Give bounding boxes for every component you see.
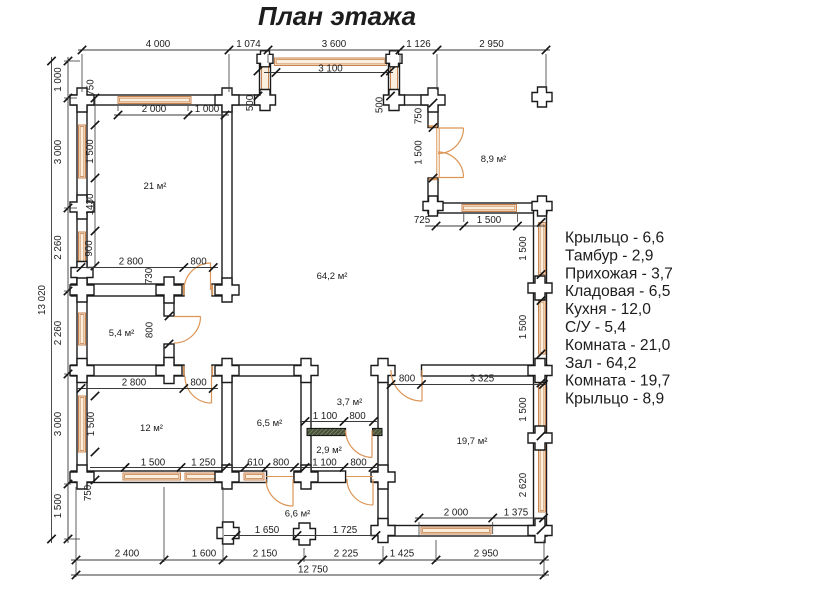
svg-text:800: 800: [350, 458, 367, 469]
svg-text:2 260: 2 260: [53, 320, 64, 345]
svg-text:500: 500: [375, 96, 386, 113]
svg-text:64,2 м²: 64,2 м²: [317, 271, 348, 282]
svg-text:2 400: 2 400: [115, 549, 140, 560]
svg-text:1 600: 1 600: [192, 549, 217, 560]
svg-text:21 м²: 21 м²: [144, 181, 167, 192]
svg-text:5,4 м²: 5,4 м²: [109, 328, 135, 339]
svg-text:1 500: 1 500: [518, 397, 529, 422]
svg-text:1 500: 1 500: [141, 458, 166, 469]
svg-text:12 750: 12 750: [298, 565, 329, 576]
svg-text:19,7 м²: 19,7 м²: [457, 436, 488, 447]
svg-text:Тамбур - 2,9: Тамбур - 2,9: [565, 247, 653, 264]
svg-text:4 000: 4 000: [146, 39, 171, 50]
svg-text:730: 730: [144, 267, 155, 284]
svg-text:1 500: 1 500: [518, 236, 529, 261]
svg-text:1 425: 1 425: [390, 549, 415, 560]
svg-text:750: 750: [86, 79, 97, 96]
svg-text:900: 900: [84, 240, 95, 257]
svg-text:2 150: 2 150: [253, 549, 278, 560]
svg-text:13 020: 13 020: [37, 284, 48, 315]
svg-text:1 100: 1 100: [313, 411, 338, 422]
svg-text:2,9 м²: 2,9 м²: [316, 445, 342, 456]
svg-text:1 500: 1 500: [477, 215, 502, 226]
svg-text:Зал - 64,2: Зал - 64,2: [565, 355, 636, 372]
svg-text:3 000: 3 000: [53, 411, 64, 436]
svg-text:1 000: 1 000: [53, 67, 64, 92]
svg-text:1 725: 1 725: [333, 525, 358, 536]
svg-text:Прихожая - 3,7: Прихожая - 3,7: [565, 265, 673, 282]
svg-text:800: 800: [399, 374, 416, 385]
svg-text:Кухня - 12,0: Кухня - 12,0: [565, 301, 651, 318]
svg-text:План этажа: План этажа: [258, 1, 416, 31]
svg-text:6,6 м²: 6,6 м²: [285, 509, 311, 520]
svg-text:1 650: 1 650: [255, 525, 280, 536]
svg-text:С/У - 5,4: С/У - 5,4: [565, 319, 626, 336]
svg-text:1 126: 1 126: [406, 39, 431, 50]
svg-text:1 500: 1 500: [86, 411, 97, 436]
svg-text:1 250: 1 250: [191, 458, 216, 469]
svg-text:3 325: 3 325: [470, 374, 495, 385]
svg-text:2 260: 2 260: [53, 235, 64, 260]
svg-text:1 074: 1 074: [236, 39, 261, 50]
svg-text:6,5 м²: 6,5 м²: [257, 418, 283, 429]
svg-text:1 500: 1 500: [518, 314, 529, 339]
svg-text:2 620: 2 620: [518, 472, 529, 497]
svg-text:750: 750: [414, 107, 425, 124]
svg-text:Комната - 19,7: Комната - 19,7: [565, 373, 670, 390]
svg-text:800: 800: [145, 321, 156, 338]
svg-text:2 800: 2 800: [119, 257, 144, 268]
svg-text:1 500: 1 500: [414, 140, 425, 165]
svg-text:800: 800: [190, 257, 207, 268]
svg-text:2 000: 2 000: [142, 104, 167, 115]
svg-text:750: 750: [83, 484, 94, 501]
svg-text:610: 610: [247, 458, 264, 469]
svg-text:3 000: 3 000: [53, 139, 64, 164]
svg-text:2 950: 2 950: [479, 39, 504, 50]
svg-text:3,7 м²: 3,7 м²: [337, 397, 363, 408]
svg-text:800: 800: [273, 458, 290, 469]
svg-text:1 375: 1 375: [504, 508, 529, 519]
svg-text:Крыльцо - 6,6: Крыльцо - 6,6: [565, 230, 664, 247]
svg-text:3 100: 3 100: [318, 64, 343, 75]
svg-text:1 500: 1 500: [85, 139, 96, 164]
svg-text:1 100: 1 100: [312, 458, 337, 469]
svg-text:800: 800: [349, 411, 366, 422]
svg-text:8,9 м²: 8,9 м²: [481, 154, 507, 165]
svg-text:2 950: 2 950: [474, 549, 499, 560]
svg-text:500: 500: [245, 94, 256, 111]
svg-text:Кладовая - 6,5: Кладовая - 6,5: [565, 283, 671, 300]
svg-text:1430: 1430: [85, 193, 96, 215]
svg-text:Комната - 21,0: Комната - 21,0: [565, 337, 671, 354]
svg-text:725: 725: [414, 215, 431, 226]
svg-text:3 600: 3 600: [322, 39, 347, 50]
svg-text:1 500: 1 500: [53, 493, 64, 518]
svg-text:2 800: 2 800: [122, 378, 147, 389]
svg-text:12 м²: 12 м²: [140, 423, 163, 434]
svg-text:2 225: 2 225: [334, 549, 359, 560]
svg-text:1 000: 1 000: [195, 104, 220, 115]
svg-text:800: 800: [190, 378, 207, 389]
svg-text:Крыльцо - 8,9: Крыльцо - 8,9: [565, 391, 664, 408]
svg-text:2 000: 2 000: [444, 508, 469, 519]
